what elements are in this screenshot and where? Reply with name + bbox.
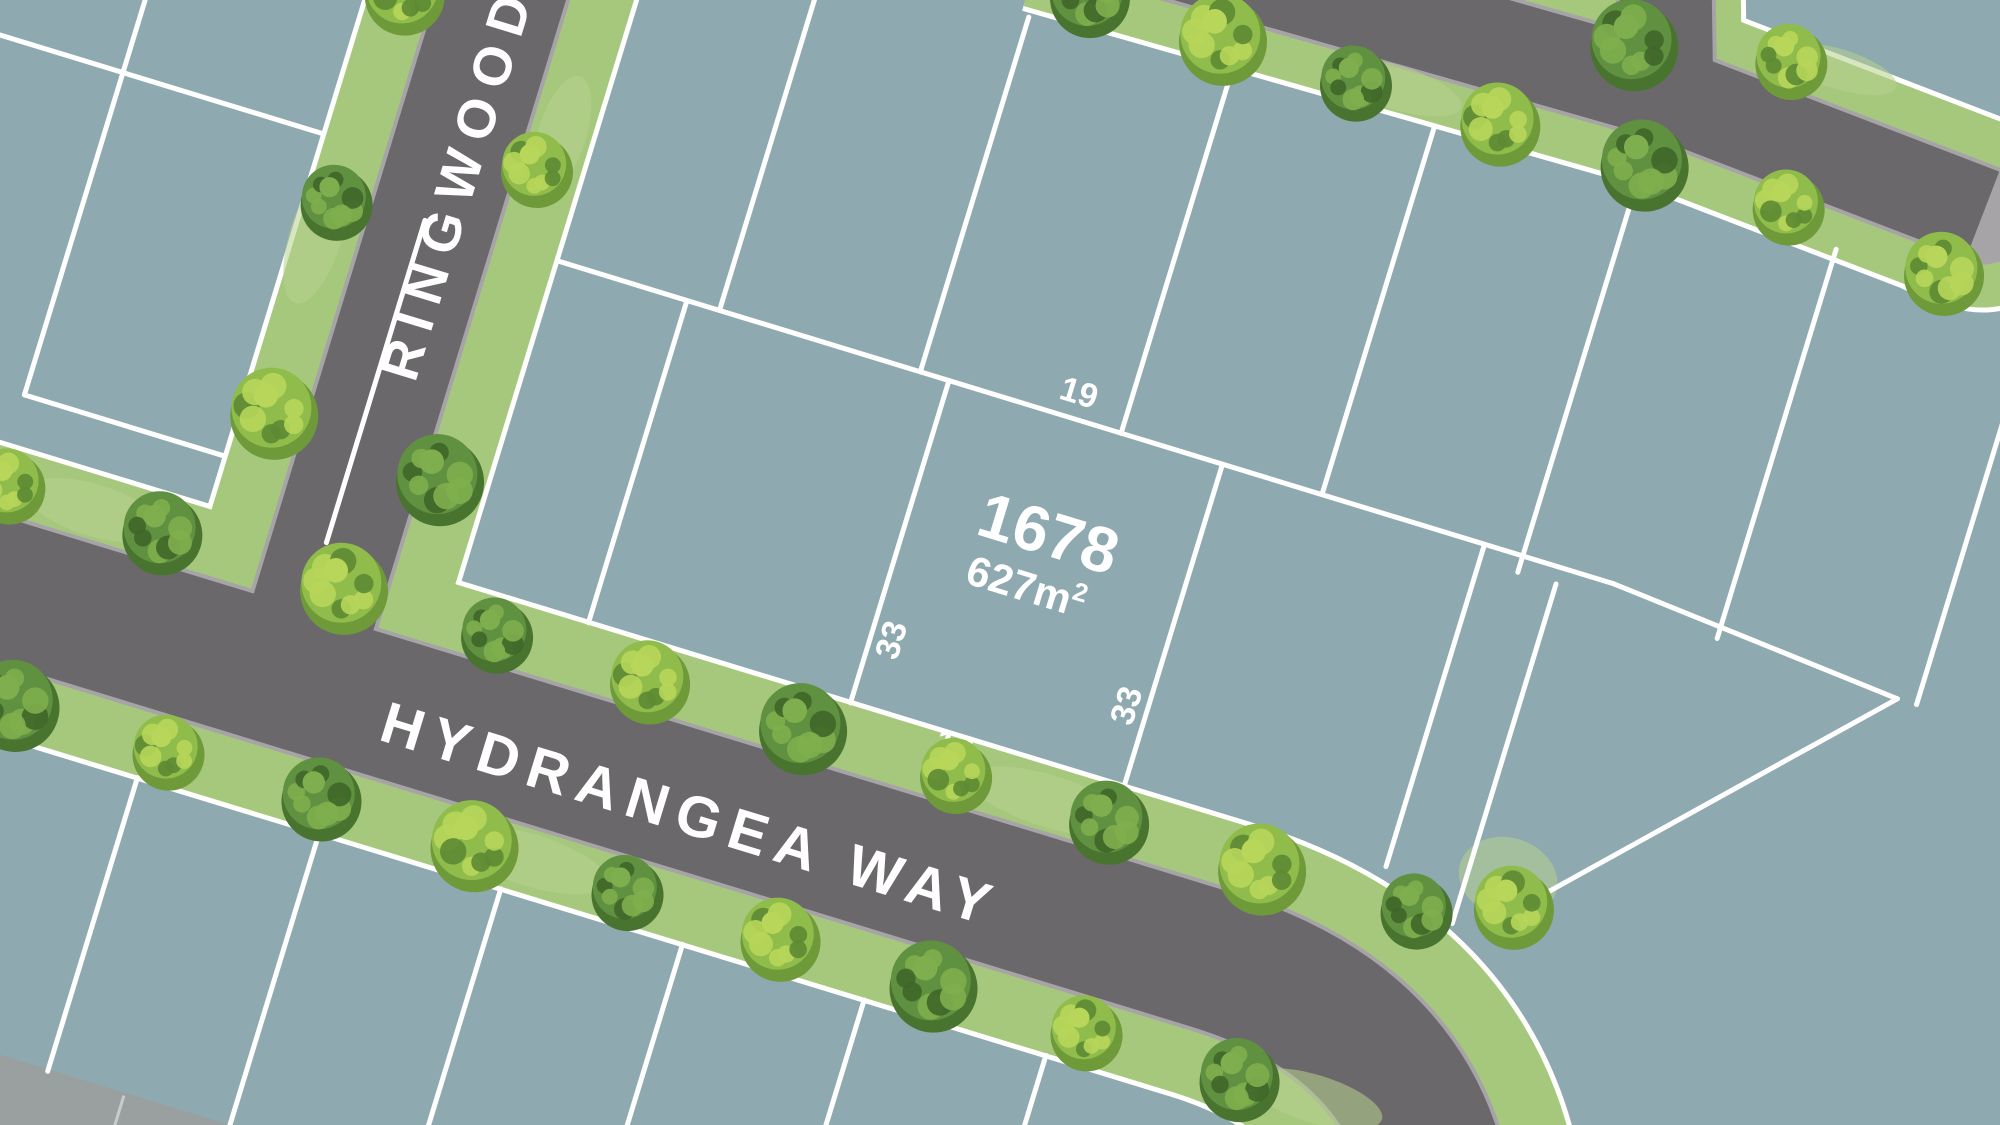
masterplan-canvas: HYDRANGEA WAYRINGWOOD1678627m219193333 (0, 0, 2000, 1125)
estate-map: HYDRANGEA WAYRINGWOOD1678627m219193333 (0, 0, 2000, 1125)
